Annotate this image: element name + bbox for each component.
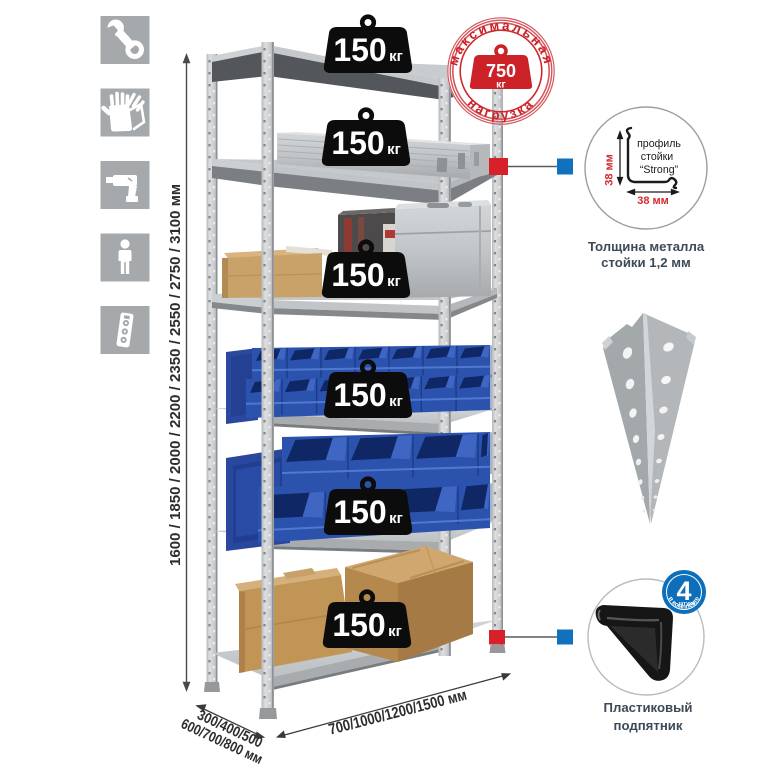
svg-text:“Strong”: “Strong”: [640, 164, 679, 176]
svg-text:1600 / 1850 / 2000 / 2200 / 23: 1600 / 1850 / 2000 / 2200 / 2350 / 2550 …: [168, 184, 184, 566]
svg-text:38 мм: 38 мм: [604, 154, 616, 186]
svg-text:38 мм: 38 мм: [637, 195, 669, 207]
svg-text:кг: кг: [496, 79, 506, 91]
svg-text:стойки 1,2 мм: стойки 1,2 мм: [601, 255, 691, 270]
svg-text:подпятник: подпятник: [613, 718, 682, 733]
svg-text:Пластиковый: Пластиковый: [603, 700, 692, 715]
svg-text:профиль: профиль: [637, 138, 681, 150]
svg-text:Толщина металла: Толщина металла: [588, 239, 705, 254]
svg-text:стойки: стойки: [641, 151, 673, 163]
